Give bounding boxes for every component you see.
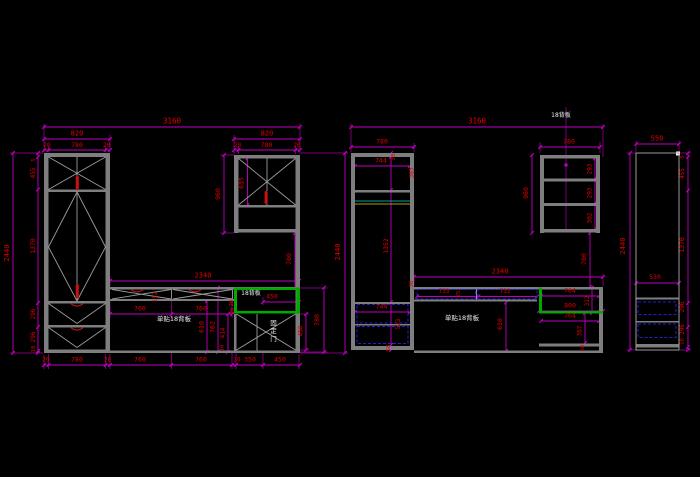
- dimension-text: 25: [456, 291, 462, 298]
- cabinet-member: [596, 155, 600, 233]
- drawer-pull-icon: [189, 290, 201, 292]
- dimension-text: 780: [261, 141, 273, 149]
- dimension-text: 780: [71, 356, 83, 364]
- drawer-pull-icon: [71, 328, 83, 330]
- cabinet-member: [49, 301, 106, 304]
- dimension-text: 3160: [468, 117, 487, 126]
- dimension-text: 700: [580, 253, 588, 265]
- cabinet-member: [49, 325, 106, 328]
- annotation-label: 单贴18背板: [157, 314, 192, 323]
- cabinet-member: [539, 344, 603, 347]
- drawer-hidden-box: [638, 324, 676, 338]
- dimension-text: 312: [584, 295, 591, 306]
- dimension-text: 733: [439, 288, 450, 295]
- dimension-text: 764: [564, 287, 576, 295]
- dimension-text: 760: [195, 305, 207, 313]
- right-elevation-view: 3160780744383831352744523582340307332573…: [349, 107, 691, 353]
- dimension-text: 296: [30, 331, 37, 342]
- cabinet-member: [544, 155, 596, 159]
- dimension-text: 20: [234, 142, 242, 149]
- dimension-text: 2340: [195, 272, 212, 280]
- dimension-text: 18: [680, 338, 686, 345]
- cabinet-member: [234, 314, 237, 351]
- cabinet-member: [636, 344, 679, 348]
- panel-edge-banding: [297, 288, 301, 312]
- cabinet-member: [239, 205, 296, 208]
- dimension-text: 820: [261, 130, 274, 138]
- dimension-text: 414: [220, 327, 227, 338]
- dimension-text: 296: [679, 301, 686, 312]
- dimension-text: 383: [409, 167, 416, 178]
- cad-line: [49, 192, 78, 247]
- dimension-text: 293: [587, 187, 594, 198]
- dimension-text: 550: [651, 135, 664, 143]
- dimension-text: 760: [195, 356, 207, 364]
- cabinet-member: [544, 229, 596, 233]
- dimension-text: 800: [564, 302, 576, 310]
- dimension-text: 1370: [29, 238, 37, 254]
- dimension-text: 18: [31, 346, 37, 353]
- door-handle-icon: [76, 284, 79, 298]
- dimension-text: 5: [31, 158, 37, 161]
- dimension-text: 20: [230, 308, 236, 315]
- dimension-text: 152: [152, 291, 159, 302]
- dimension-text: 20: [233, 357, 241, 364]
- cad-line: [77, 304, 106, 324]
- dimension-text: 2340: [492, 268, 509, 276]
- dimension-text: 20: [104, 357, 112, 364]
- dimension-text: 744: [375, 157, 387, 165]
- cabinet-member: [636, 298, 679, 300]
- annotation-label: 固: [270, 319, 277, 327]
- cad-line: [49, 328, 78, 348]
- dimension-text: 960: [522, 187, 530, 199]
- dimension-text: 20: [43, 142, 51, 149]
- drawer-pull-icon: [71, 304, 83, 306]
- cabinet-member: [540, 155, 544, 233]
- dimension-text: 530: [649, 273, 661, 281]
- cabinet-member: [239, 229, 296, 233]
- dimension-text: 2440: [3, 245, 11, 262]
- cabinet-member: [544, 179, 596, 182]
- dimension-text: 744: [376, 303, 388, 311]
- cabinet-member: [234, 155, 239, 233]
- dimension-text: 30: [409, 281, 415, 288]
- cabinet-member: [636, 321, 679, 323]
- dimension-text: 635: [238, 177, 246, 189]
- dimension-text: 700: [285, 253, 293, 265]
- dimension-text: 960: [214, 188, 222, 200]
- dimension-text: 760: [134, 305, 146, 313]
- dimension-text: 455: [679, 168, 686, 179]
- leader-dot: [565, 164, 568, 167]
- dimension-text: 367: [577, 325, 584, 336]
- dimension-text: 5: [680, 155, 686, 158]
- dimension-text: 820: [71, 130, 84, 138]
- panel-edge-banding: [539, 288, 542, 314]
- cabinet-member: [599, 288, 603, 351]
- cabinet-member: [106, 153, 111, 353]
- cad-canvas[interactable]: 3160820207802082020780202440545513702962…: [0, 0, 700, 477]
- dimension-text: 20: [103, 142, 111, 149]
- dimension-text: 762: [209, 321, 217, 333]
- dimension-text: 296: [679, 324, 686, 335]
- cabinet-member: [351, 346, 414, 350]
- dimension-text: 20: [42, 357, 50, 364]
- cad-line: [49, 304, 78, 324]
- dimension-text: 3160: [163, 117, 182, 126]
- annotation-label: 18背板: [551, 111, 571, 119]
- annotation-label: 18背板: [241, 289, 261, 297]
- cabinet-member: [351, 153, 355, 350]
- cabinet-member: [110, 299, 234, 301]
- dimension-text: 293: [587, 163, 594, 174]
- door-handle-icon: [265, 191, 268, 204]
- cabinet-member: [414, 351, 603, 354]
- dimension-text: 1370: [678, 237, 686, 253]
- cad-line: [77, 328, 106, 348]
- dimension-text: 58: [386, 345, 392, 352]
- panel-edge-banding: [234, 311, 300, 314]
- dimension-text: 20: [229, 300, 235, 307]
- dimension-text: 1352: [382, 238, 390, 254]
- dimension-text: 780: [71, 141, 83, 149]
- drawer-hidden-box: [638, 302, 676, 315]
- cad-line: [77, 247, 106, 301]
- dimension-text: 450: [298, 325, 305, 336]
- cabinet-member: [110, 351, 300, 354]
- dimension-text: 760: [134, 356, 146, 364]
- annotation-label: 门: [270, 334, 277, 343]
- cabinet-member: [296, 155, 301, 233]
- dimension-text: 455: [30, 167, 37, 178]
- cabinet-member: [544, 203, 596, 206]
- dimension-text: 302: [587, 212, 594, 223]
- cabinet-member: [355, 190, 410, 193]
- dimension-text: 20: [293, 142, 301, 149]
- dimension-text: 38: [391, 154, 397, 161]
- door-handle-icon: [76, 176, 79, 190]
- dimension-text: 450: [274, 356, 286, 364]
- cad-viewport: 3160820207802082020780202440545513702962…: [0, 0, 700, 477]
- dimension-text: 780: [563, 138, 575, 146]
- annotation-label: 单贴18背板: [445, 313, 480, 322]
- annotation-label: 定: [270, 326, 277, 335]
- cabinet-member: [44, 153, 49, 353]
- dimension-text: 18: [220, 345, 226, 352]
- cabinet-member: [239, 155, 296, 159]
- dimension-text: 780: [313, 314, 321, 326]
- dimension-text: 610: [198, 321, 206, 333]
- dimension-text: 296: [30, 308, 37, 319]
- dimension-text: 733: [500, 288, 511, 295]
- cabinet-member: [410, 153, 414, 350]
- cabinet-member: [414, 300, 537, 302]
- dimension-text: 58: [580, 345, 586, 352]
- dimension-text: 450: [266, 293, 278, 301]
- dimension-text: 2440: [619, 238, 627, 255]
- drawer-pull-icon: [131, 290, 143, 292]
- dimension-text: 764: [564, 312, 576, 320]
- dimension-text: 350: [244, 356, 256, 364]
- cabinet-outline: [636, 153, 679, 350]
- dimension-text: 610: [496, 318, 504, 330]
- cabinet-member: [44, 350, 110, 354]
- dimension-text: 523: [395, 318, 402, 329]
- left-elevation-view: 3160820207802082020780202440545513702962…: [3, 117, 348, 370]
- cad-line: [77, 192, 106, 247]
- dimension-text: 2440: [334, 244, 342, 261]
- cad-line: [49, 247, 78, 301]
- dimension-text: 780: [376, 138, 388, 146]
- cabinet-member: [49, 153, 106, 157]
